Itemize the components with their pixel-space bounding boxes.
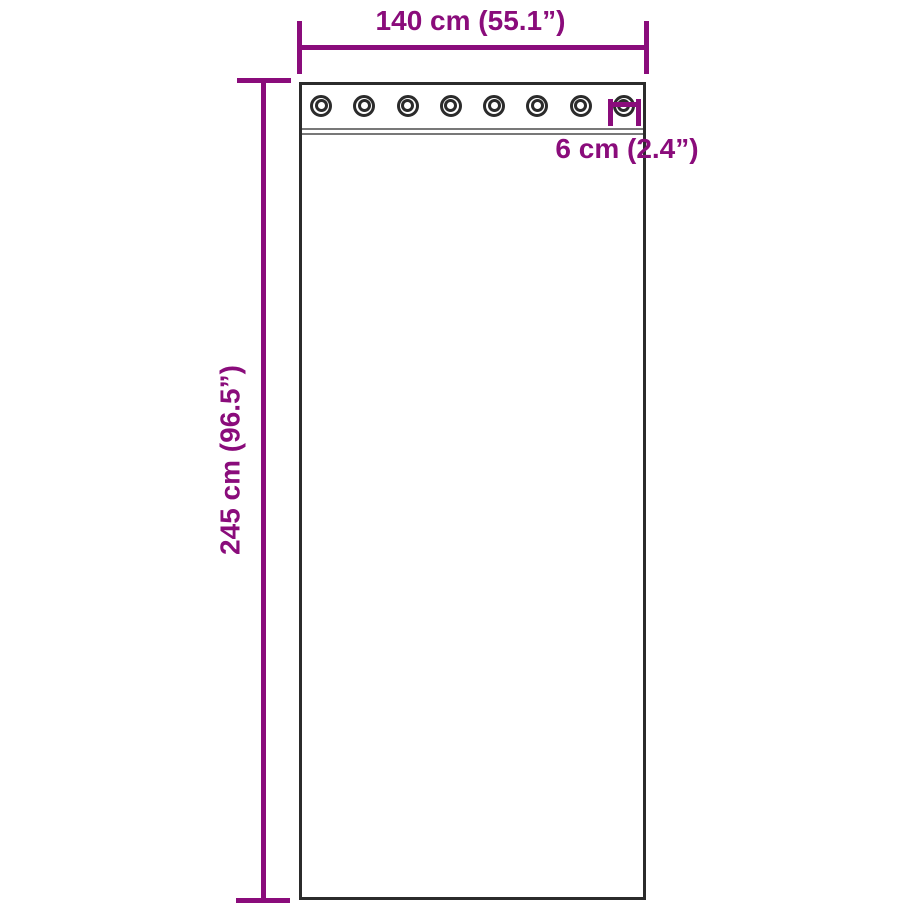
curtain-panel [299,82,646,900]
width-dimension-tick-left [297,21,302,74]
grommet-icon [570,95,592,117]
grommet-hole [574,99,587,112]
grommet-icon [526,95,548,117]
height-dimension-line [261,80,266,902]
grommet-hole [488,99,501,112]
grommet-icon [397,95,419,117]
width-dimension-label: 140 cm (55.1”) [348,6,593,37]
grommet-hole [358,99,371,112]
grommet-hole [401,99,414,112]
width-dimension-tick-right [644,21,649,74]
grommet-hole [315,99,328,112]
height-dimension-tick-bottom [236,898,290,903]
grommet-diameter-bracket-tick-left [608,99,613,126]
grommet-diameter-bracket-tick-right [636,99,641,126]
grommet-hole [444,99,457,112]
height-dimension-tick-top [237,78,291,83]
grommet-icon [440,95,462,117]
grommet-hole [531,99,544,112]
height-dimension-label: 245 cm (96.5”) [216,365,247,555]
grommet-icon [353,95,375,117]
grommet-row [299,94,646,117]
diagram-canvas: 140 cm (55.1”) 245 cm (96.5”) 6 cm (2.4”… [0,0,920,920]
grommet-icon [310,95,332,117]
grommet-diameter-label: 6 cm (2.4”) [552,134,702,165]
width-dimension-line [299,45,647,50]
grommet-icon [483,95,505,117]
